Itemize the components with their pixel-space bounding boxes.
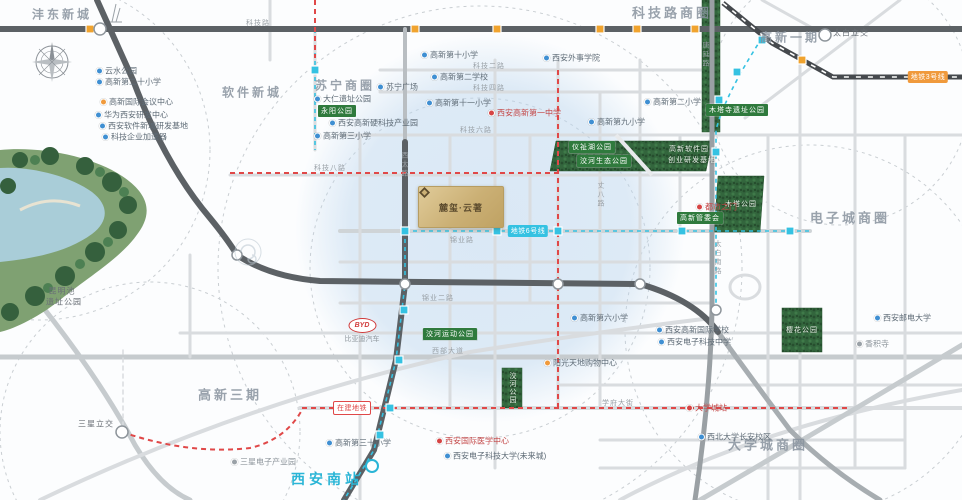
poi-label: 三星电子产业园 [240, 457, 296, 468]
poi-label: 西安外事学院 [552, 53, 600, 64]
poi-dot-icon [96, 79, 103, 86]
poi-label: 西安高新硬科技产业园 [338, 118, 418, 129]
poi-marker: 西北大学长安校区 [698, 432, 771, 443]
poi-marker: 高新第六小学 [571, 313, 628, 324]
poi-dot-icon [231, 459, 238, 466]
poi-label: 香积寺 [865, 339, 889, 350]
poi-marker: 华为西安研发中心 [95, 110, 168, 121]
poi-marker: 苏宁广场 [377, 82, 418, 93]
poi-dot-icon [543, 55, 550, 62]
poi-dot-icon [856, 341, 863, 348]
poi-marker: 大学城站 [686, 403, 727, 414]
poi-dot-icon [544, 360, 551, 367]
poi-dot-icon [426, 100, 433, 107]
poi-label: 西北大学长安校区 [707, 432, 771, 443]
poi-label: 云水公园 [105, 66, 137, 77]
poi-marker: 高新第三十小学 [326, 438, 391, 449]
poi-label: 高新第九小学 [597, 117, 645, 128]
poi-dot-icon [100, 99, 107, 106]
poi-label: 西安软件新城研发基地 [108, 121, 188, 132]
poi-dot-icon [488, 110, 495, 117]
poi-dot-icon [421, 52, 428, 59]
poi-marker: 西安邮电大学 [874, 313, 931, 324]
poi-marker: 高新第二十小学 [96, 77, 161, 88]
poi-label: 高新第二小学 [653, 97, 701, 108]
poi-dot-icon [658, 339, 665, 346]
poi-label: 高新第三十小学 [335, 438, 391, 449]
poi-label: 西安电子科技中学 [667, 337, 731, 348]
byd-caption: 比亚迪汽车 [345, 334, 380, 344]
poi-dot-icon [329, 120, 336, 127]
poi-dot-icon [95, 112, 102, 119]
poi-label: 西安高新国际学校 [665, 325, 729, 336]
poi-marker: 科技企业加速器 [102, 132, 167, 143]
xian-south-station-ring [366, 460, 378, 472]
poi-marker: 西安高新国际学校 [656, 325, 729, 336]
poi-marker: 阳光天地购物中心 [544, 358, 617, 369]
poi-marker: 西安电子科技大学(未来城) [444, 451, 546, 462]
poi-marker: 大仁遗址公园 [314, 94, 371, 105]
project-name: 麓玺·云著 [439, 201, 483, 214]
poi-dot-icon [326, 440, 333, 447]
poi-marker: 高新第十一小学 [426, 98, 491, 109]
poi-label: 华为西安研发中心 [104, 110, 168, 121]
poi-dot-icon [874, 315, 881, 322]
poi-label: 高新第二十小学 [105, 77, 161, 88]
poi-marker: 高新第九小学 [588, 117, 645, 128]
poi-dot-icon [571, 315, 578, 322]
poi-dot-icon [588, 119, 595, 126]
poi-label: 高新第六小学 [580, 313, 628, 324]
poi-label: 高新第二学校 [440, 72, 488, 83]
poi-dot-icon [686, 405, 693, 412]
poi-label: 苏宁广场 [386, 82, 418, 93]
poi-marker: 西安高新第一中学 [488, 108, 561, 119]
poi-marker: 云水公园 [96, 66, 137, 77]
poi-marker: 高新国际会议中心 [100, 97, 173, 108]
project-marker: 麓玺·云著 [418, 186, 504, 228]
poi-dot-icon [314, 133, 321, 140]
poi-marker: 香积寺 [856, 339, 889, 350]
compass-icon [32, 42, 72, 82]
poi-park: 永阳公园 [318, 105, 356, 117]
poi-label: 高新国际会议中心 [109, 97, 173, 108]
location-map[interactable]: 沣东新城科技路商圈高新一期苏宁商圈软件新城电子城商圈高新三期大学城商圈 太白立交… [0, 0, 962, 500]
poi-dot-icon [314, 96, 321, 103]
poi-marker: 西安电子科技中学 [658, 337, 731, 348]
poi-dot-icon [444, 453, 451, 460]
project-logo-icon [419, 187, 430, 198]
poi-label: 西安国际医学中心 [445, 436, 509, 447]
lake-park [0, 147, 147, 332]
poi-marker: 高新第三小学 [314, 131, 371, 142]
poi-label: 阳光天地购物中心 [553, 358, 617, 369]
poi-dot-icon [656, 327, 663, 334]
poi-label: 大学城站 [695, 403, 727, 414]
poi-marker: 三星电子产业园 [231, 457, 296, 468]
poi-dot-icon [96, 68, 103, 75]
poi-label: 科技企业加速器 [111, 132, 167, 143]
poi-dot-icon [99, 123, 106, 130]
poi-marker: 高新第二学校 [431, 72, 488, 83]
sculpture-icon [110, 4, 122, 22]
poi-label: 高新第十小学 [430, 50, 478, 61]
poi-marker: 西安高新硬科技产业园 [329, 118, 418, 129]
poi-marker: 西安软件新城研发基地 [99, 121, 188, 132]
poi-label: 西安邮电大学 [883, 313, 931, 324]
poi-dot-icon [377, 84, 384, 91]
poi-label: 西安高新第一中学 [497, 108, 561, 119]
poi-label: 大仁遗址公园 [323, 94, 371, 105]
poi-label: 西安电子科技大学(未来城) [453, 451, 546, 462]
poi-label: 高新第三小学 [323, 131, 371, 142]
byd-landmark: BYD 比亚迪汽车 [345, 318, 380, 344]
poi-marker: 西安国际医学中心 [436, 436, 509, 447]
byd-logo: BYD [348, 318, 376, 333]
poi-marker: 都市之门 [696, 202, 737, 213]
poi-dot-icon [698, 434, 705, 441]
poi-dot-icon [436, 438, 443, 445]
poi-dot-icon [431, 74, 438, 81]
poi-marker: 高新第二小学 [644, 97, 701, 108]
poi-label: 都市之门 [705, 202, 737, 213]
poi-park-badge: 永阳公园 [318, 105, 356, 117]
poi-dot-icon [696, 204, 703, 211]
poi-marker: 西安外事学院 [543, 53, 600, 64]
poi-dot-icon [102, 134, 109, 141]
poi-marker: 高新第十小学 [421, 50, 478, 61]
poi-dot-icon [644, 99, 651, 106]
poi-label: 高新第十一小学 [435, 98, 491, 109]
